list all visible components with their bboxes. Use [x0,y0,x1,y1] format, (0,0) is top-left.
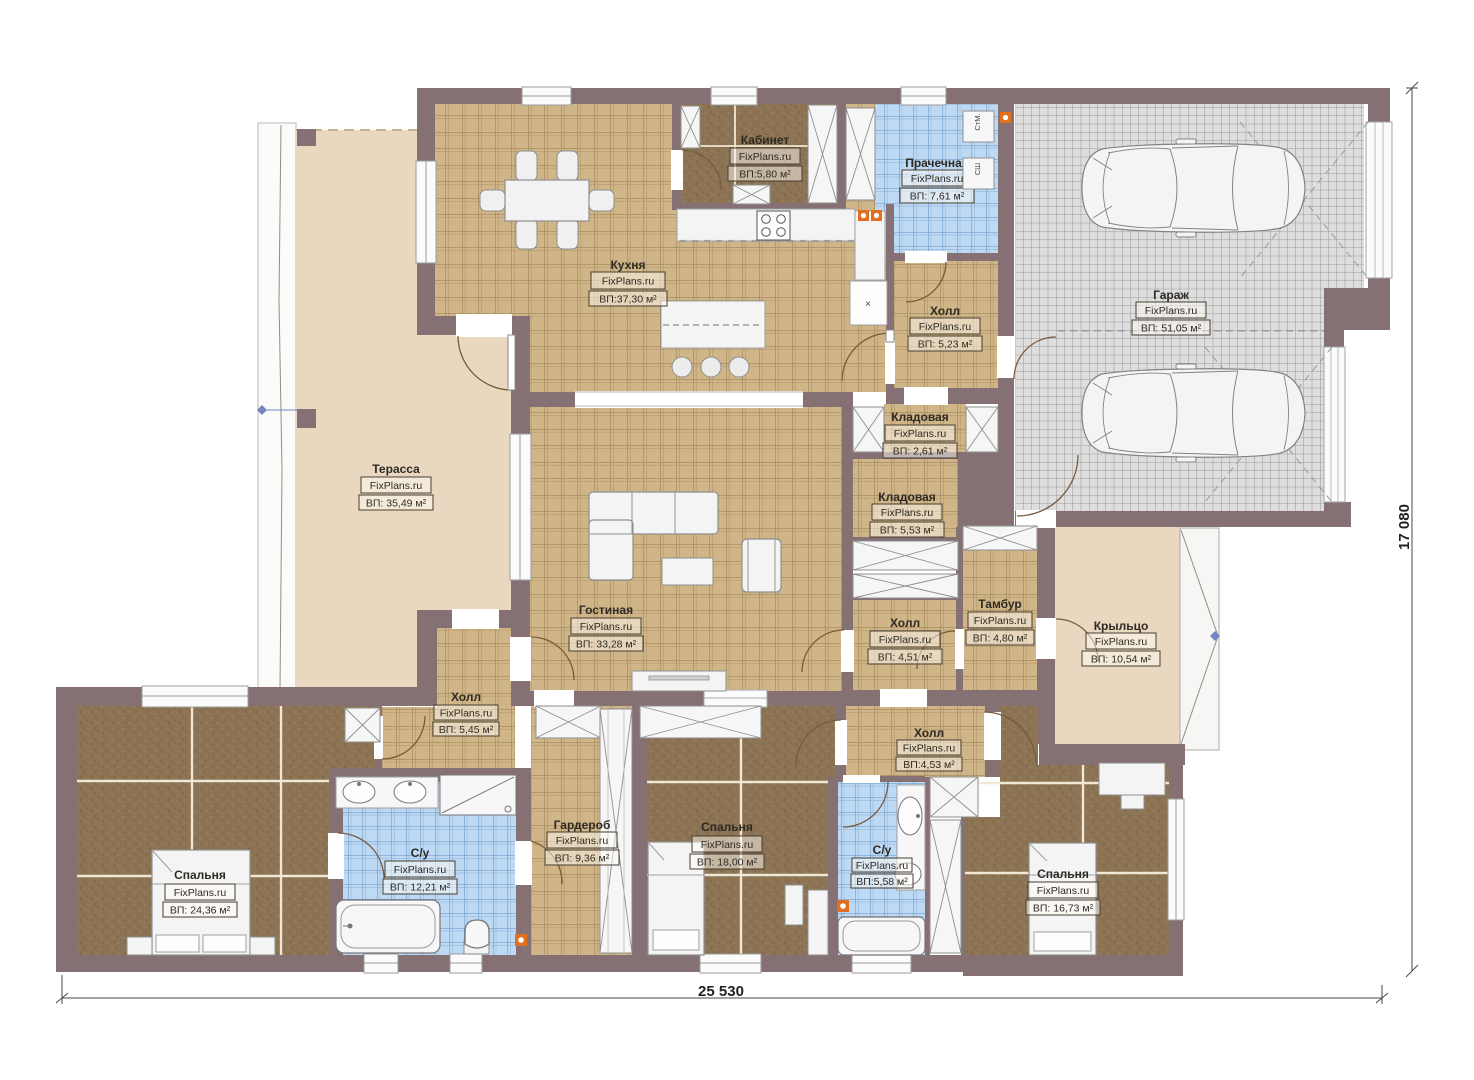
svg-text:ВП: 16,73 м²: ВП: 16,73 м² [1033,903,1094,915]
svg-text:ВП: 35,49 м²: ВП: 35,49 м² [366,498,427,510]
svg-text:17 080: 17 080 [1396,504,1413,550]
svg-text:СШ: СШ [973,163,982,175]
svg-text:FixPlans.ru: FixPlans.ru [894,428,947,440]
svg-text:Тамбур: Тамбур [978,597,1022,611]
svg-text:FixPlans.ru: FixPlans.ru [556,835,609,847]
svg-text:ВП:37,30 м²: ВП:37,30 м² [599,294,657,306]
svg-text:ВП: 9,36 м²: ВП: 9,36 м² [555,853,610,865]
svg-text:FixPlans.ru: FixPlans.ru [394,864,447,876]
svg-text:FixPlans.ru: FixPlans.ru [1145,305,1198,317]
svg-text:Кладовая: Кладовая [878,490,935,504]
svg-text:FixPlans.ru: FixPlans.ru [602,276,655,288]
svg-text:Холл: Холл [890,616,920,630]
svg-text:С/у: С/у [873,843,892,857]
svg-text:ВП:5,58 м²: ВП:5,58 м² [856,876,908,888]
svg-text:Спальня: Спальня [174,868,226,882]
svg-text:СтМ.: СтМ. [973,113,982,130]
svg-text:FixPlans.ru: FixPlans.ru [974,615,1027,627]
svg-text:FixPlans.ru: FixPlans.ru [739,151,792,163]
svg-text:ВП: 5,45 м²: ВП: 5,45 м² [439,724,494,736]
svg-text:ВП: 7,61 м²: ВП: 7,61 м² [910,191,965,203]
svg-text:FixPlans.ru: FixPlans.ru [879,634,932,646]
svg-text:Кабинет: Кабинет [741,133,790,147]
svg-text:FixPlans.ru: FixPlans.ru [903,743,956,755]
svg-text:ВП: 24,36 м²: ВП: 24,36 м² [170,905,231,917]
svg-text:ВП:5,80 м²: ВП:5,80 м² [739,169,791,181]
svg-text:Кухня: Кухня [610,258,645,272]
svg-text:Спальня: Спальня [1037,867,1089,881]
svg-text:×: × [865,299,871,310]
svg-text:Гараж: Гараж [1153,288,1189,302]
svg-text:FixPlans.ru: FixPlans.ru [1037,885,1090,897]
svg-text:ВП: 5,23 м²: ВП: 5,23 м² [918,339,973,351]
svg-text:Гардероб: Гардероб [554,818,611,832]
svg-text:ВП: 4,51 м²: ВП: 4,51 м² [878,652,933,664]
svg-text:ВП: 33,28 м²: ВП: 33,28 м² [576,639,637,651]
svg-text:Прачечная: Прачечная [905,156,969,170]
svg-text:FixPlans.ru: FixPlans.ru [370,480,423,492]
svg-text:FixPlans.ru: FixPlans.ru [580,621,633,633]
svg-text:Гостиная: Гостиная [579,603,633,617]
svg-text:FixPlans.ru: FixPlans.ru [440,708,493,720]
svg-text:25 530: 25 530 [698,983,744,1000]
svg-text:ВП: 4,80 м²: ВП: 4,80 м² [973,633,1028,645]
svg-text:С/у: С/у [411,846,430,860]
svg-text:Кладовая: Кладовая [891,410,948,424]
svg-text:ВП:4,53 м²: ВП:4,53 м² [903,759,955,771]
svg-text:Холл: Холл [451,690,481,704]
svg-text:ВП: 12,21 м²: ВП: 12,21 м² [390,882,451,894]
svg-text:FixPlans.ru: FixPlans.ru [1095,636,1148,648]
svg-text:Спальня: Спальня [701,820,753,834]
svg-text:ВП: 18,00 м²: ВП: 18,00 м² [697,857,758,869]
svg-text:FixPlans.ru: FixPlans.ru [701,839,754,851]
svg-text:ВП: 2,61 м²: ВП: 2,61 м² [893,446,948,458]
svg-text:FixPlans.ru: FixPlans.ru [174,887,227,899]
svg-text:ВП: 10,54 м²: ВП: 10,54 м² [1091,654,1152,666]
svg-text:Холл: Холл [914,726,944,740]
svg-text:Терасса: Терасса [372,462,420,476]
svg-text:Крыльцо: Крыльцо [1094,619,1149,633]
svg-text:FixPlans.ru: FixPlans.ru [881,507,934,519]
svg-text:Холл: Холл [930,304,960,318]
svg-text:FixPlans.ru: FixPlans.ru [856,860,909,872]
svg-text:ВП: 51,05 м²: ВП: 51,05 м² [1141,323,1202,335]
svg-text:ВП: 5,53 м²: ВП: 5,53 м² [880,525,935,537]
svg-text:FixPlans.ru: FixPlans.ru [919,321,972,333]
svg-text:FixPlans.ru: FixPlans.ru [911,173,964,185]
